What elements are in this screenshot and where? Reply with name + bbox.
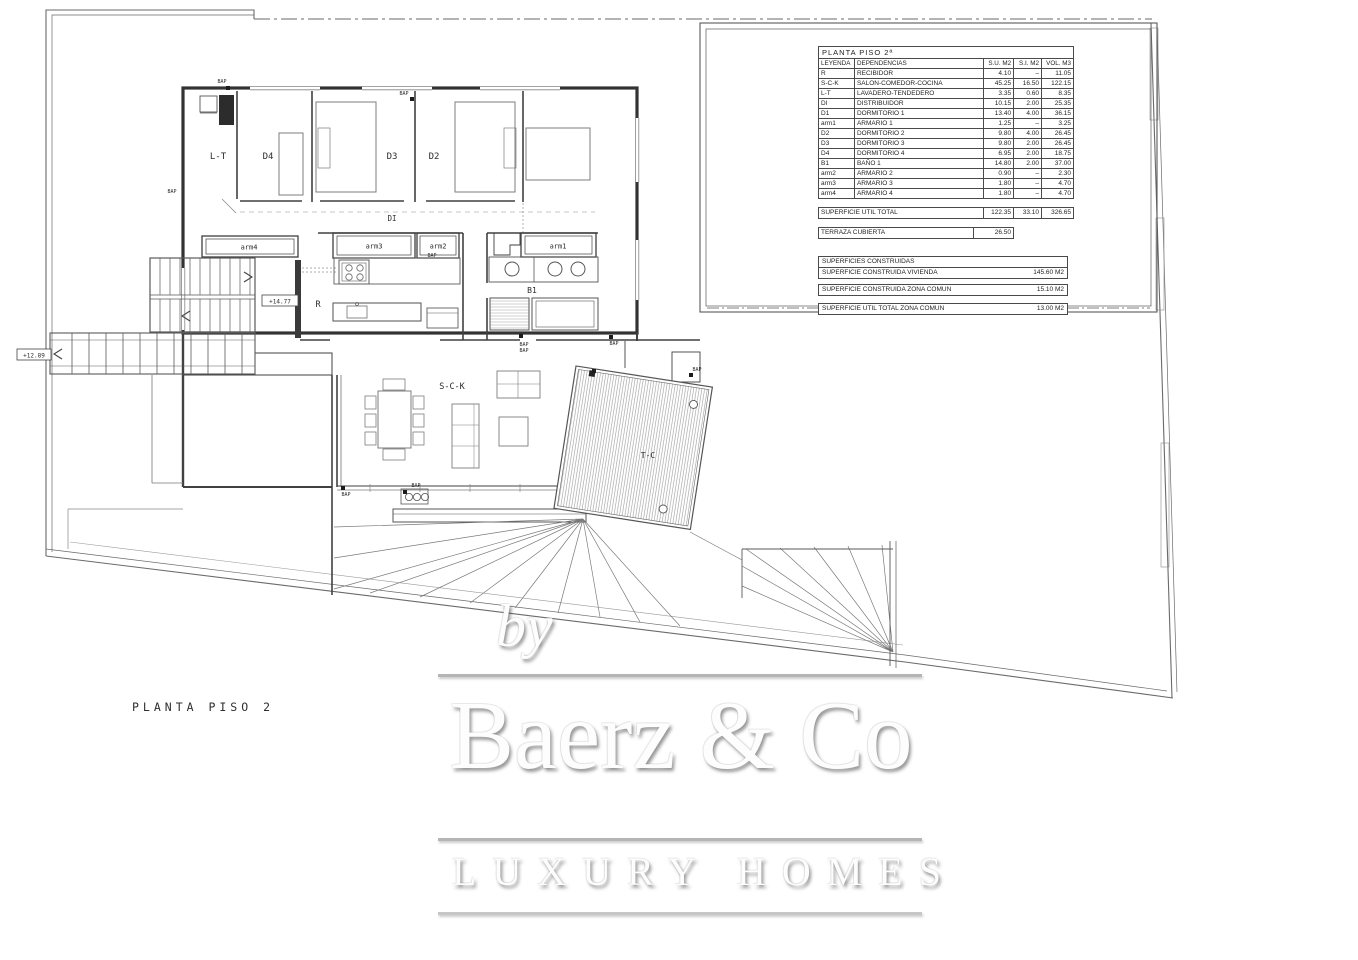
legend-code: arm3 [819, 179, 855, 189]
legend-room-name: ARMARIO 4 [854, 189, 983, 199]
util-zona-label: SUPERFICIE UTIL TOTAL ZONA COMUN [822, 305, 944, 313]
legend-si: 4.00 [1014, 109, 1042, 119]
legend-room-name: BAÑO 1 [854, 159, 983, 169]
vent-label: BAP [427, 253, 436, 259]
legend-row: D2 DORMITORIO 2 9.80 4.00 26.45 [819, 129, 1074, 139]
legend-code: S-C-K [819, 79, 855, 89]
legend-si: – [1014, 169, 1042, 179]
legend-room-name: DORMITORIO 1 [854, 109, 983, 119]
room-label-tc: T-C [641, 451, 656, 460]
legend-su: 3.35 [984, 89, 1014, 99]
legend-vol: 8.35 [1042, 89, 1074, 99]
room-label-arm4: arm4 [241, 244, 258, 252]
legend-room-name: DORMITORIO 4 [854, 149, 983, 159]
legend-room-name: ARMARIO 1 [854, 119, 983, 129]
terraza-label: TERRAZA CUBIERTA [819, 228, 973, 238]
legend-room-name: DORMITORIO 2 [854, 129, 983, 139]
legend-room-name: DISTRIBUIDOR [854, 99, 983, 109]
legend-header: S.U. M2 [984, 59, 1014, 69]
zona-comun-label: SUPERFICIE CONSTRUIDA ZONA COMUN [822, 286, 951, 294]
total-util-box: SUPERFICIE UTIL TOTAL 122.35 33.10 326.6… [818, 207, 1074, 219]
room-label-d3: D3 [387, 152, 398, 162]
legend-header: VOL. M3 [1042, 59, 1074, 69]
legend-si: 4.00 [1014, 129, 1042, 139]
legend-vol: 25.35 [1042, 99, 1074, 109]
built-vivienda-value: 145.60 M2 [1033, 269, 1064, 277]
legend-su: 13.40 [984, 109, 1014, 119]
legend-header-row: LEYENDA DEPENDENCIAS S.U. M2 S.I. M2 VOL… [819, 59, 1074, 69]
room-label-arm3: arm3 [366, 243, 383, 251]
terrace-connector [690, 532, 742, 560]
legend-si: 16.50 [1014, 79, 1042, 89]
vent-label: BAP [411, 483, 420, 489]
legend-panel: PLANTA PISO 2ª LEYENDA DEPENDENCIAS S.U.… [818, 46, 1074, 315]
vent-label: BAP [399, 91, 408, 97]
room-label-r: R [315, 300, 321, 310]
legend-room-name: RECIBIDOR [854, 69, 983, 79]
legend-row: D4 DORMITORIO 4 6.95 2.00 18.75 [819, 149, 1074, 159]
legend-row: arm4 ARMARIO 4 1.80 – 4.70 [819, 189, 1074, 199]
legend-code: D3 [819, 139, 855, 149]
total-util-su: 122.35 [983, 208, 1013, 218]
legend-su: 4.10 [984, 69, 1014, 79]
legend-row: B1 BAÑO 1 14.80 2.00 37.00 [819, 159, 1074, 169]
legend-vol: 2.30 [1042, 169, 1074, 179]
legend-si: 0.60 [1014, 89, 1042, 99]
legend-si: – [1014, 119, 1042, 129]
vent-label: BAP [217, 79, 226, 85]
room-label-sck: S-C-K [439, 382, 465, 392]
util-zona-value: 13.00 M2 [1037, 305, 1064, 313]
legend-row: arm2 ARMARIO 2 0.90 – 2.30 [819, 169, 1074, 179]
legend-code: D4 [819, 149, 855, 159]
building-shell [180, 85, 640, 333]
legend-si: – [1014, 179, 1042, 189]
legend-code: L-T [819, 89, 855, 99]
legend-su: 14.80 [984, 159, 1014, 169]
legend-vol: 36.15 [1042, 109, 1074, 119]
legend-header: DEPENDENCIAS [854, 59, 983, 69]
legend-si: – [1014, 189, 1042, 199]
room-label-di: DI [387, 214, 396, 223]
fan-stairs [334, 519, 896, 668]
vent-label: BAP [609, 341, 618, 347]
legend-code: R [819, 69, 855, 79]
legend-si: 2.00 [1014, 159, 1042, 169]
legend-header: S.I. M2 [1014, 59, 1042, 69]
legend-row: S-C-K SALON-COMEDOR-COCINA 45.25 16.50 1… [819, 79, 1074, 89]
legend-su: 9.80 [984, 129, 1014, 139]
terraza-value: 26.50 [973, 228, 1013, 238]
legend-su: 0.90 [984, 169, 1014, 179]
legend-su: 1.80 [984, 179, 1014, 189]
legend-su: 1.25 [984, 119, 1014, 129]
legend-row: L-T LAVADERO-TENDEDERO 3.35 0.60 8.35 [819, 89, 1074, 99]
built-vivienda-label: SUPERFICIE CONSTRUIDA VIVIENDA [822, 269, 938, 277]
legend-row: R RECIBIDOR 4.10 – 11.05 [819, 69, 1074, 79]
legend-code: DI [819, 99, 855, 109]
zona-comun-box: SUPERFICIE CONSTRUIDA ZONA COMUN 15.10 M… [818, 284, 1068, 296]
vent-label: BAP [519, 348, 528, 354]
legend-vol: 4.70 [1042, 189, 1074, 199]
legend-room-name: DORMITORIO 3 [854, 139, 983, 149]
legend-su: 1.80 [984, 189, 1014, 199]
legend-si: 2.00 [1014, 139, 1042, 149]
zona-comun-value: 15.10 M2 [1037, 286, 1064, 294]
legend-title: PLANTA PISO 2ª [819, 47, 1074, 59]
room-label-arm2: arm2 [430, 243, 447, 251]
room-label-b1: B1 [527, 286, 537, 295]
legend-row: arm1 ARMARIO 1 1.25 – 3.25 [819, 119, 1074, 129]
legend-code: D1 [819, 109, 855, 119]
terraza-box: TERRAZA CUBIERTA 26.50 [818, 227, 1014, 239]
legend-code: arm4 [819, 189, 855, 199]
vent-label: BAP [692, 367, 701, 373]
legend-row: D3 DORMITORIO 3 9.80 2.00 26.45 [819, 139, 1074, 149]
vent-label: BAP [341, 492, 350, 498]
legend-su: 9.80 [984, 139, 1014, 149]
legend-header: LEYENDA [819, 59, 855, 69]
room-label-d2: D2 [429, 152, 440, 162]
room-label-d4: D4 [263, 152, 274, 162]
legend-vol: 26.45 [1042, 129, 1074, 139]
legend-si: 2.00 [1014, 149, 1042, 159]
built-header: SUPERFICIES CONSTRUIDAS [819, 257, 1067, 267]
drawing-title: PLANTA PISO 2 [132, 700, 274, 714]
legend-vol: 3.25 [1042, 119, 1074, 129]
legend-room-name: LAVADERO-TENDEDERO [854, 89, 983, 99]
legend-si: 2.00 [1014, 99, 1042, 109]
terrace-deck [554, 366, 712, 529]
legend-room-name: ARMARIO 2 [854, 169, 983, 179]
room-label-lt: L-T [210, 152, 227, 162]
legend-su: 10.15 [984, 99, 1014, 109]
legend-vol: 122.15 [1042, 79, 1074, 89]
legend-vol: 37.00 [1042, 159, 1074, 169]
level-lower-label: +12.89 [23, 353, 45, 360]
legend-table: PLANTA PISO 2ª LEYENDA DEPENDENCIAS S.U.… [818, 46, 1074, 199]
legend-room-name: SALON-COMEDOR-COCINA [854, 79, 983, 89]
legend-row: D1 DORMITORIO 1 13.40 4.00 36.15 [819, 109, 1074, 119]
legend-su: 6.95 [984, 149, 1014, 159]
legend-room-name: ARMARIO 3 [854, 179, 983, 189]
total-util-vol: 326.65 [1041, 208, 1073, 218]
built-vivienda-row: SUPERFICIE CONSTRUIDA VIVIENDA 145.60 M2 [819, 267, 1067, 278]
vent-label: BAP [167, 189, 176, 195]
legend-vol: 18.75 [1042, 149, 1074, 159]
total-util-si: 33.10 [1013, 208, 1041, 218]
legend-code: B1 [819, 159, 855, 169]
util-zona-box: SUPERFICIE UTIL TOTAL ZONA COMUN 13.00 M… [818, 303, 1068, 315]
level-upper-label: +14.77 [269, 299, 291, 306]
legend-vol: 4.70 [1042, 179, 1074, 189]
room-label-arm1: arm1 [550, 243, 567, 251]
legend-code: arm2 [819, 169, 855, 179]
floor-plan-svg: +14.77 +12.89 L-T D4 D3 D2 DI arm4 arm3 … [0, 0, 1358, 960]
legend-row: arm3 ARMARIO 3 1.80 – 4.70 [819, 179, 1074, 189]
legend-vol: 11.05 [1042, 69, 1074, 79]
total-util-label: SUPERFICIE UTIL TOTAL [819, 208, 983, 218]
legend-vol: 26.45 [1042, 139, 1074, 149]
legend-code: arm1 [819, 119, 855, 129]
built-areas-box: SUPERFICIES CONSTRUIDAS SUPERFICIE CONST… [818, 256, 1068, 279]
floor-plan-page: +14.77 +12.89 L-T D4 D3 D2 DI arm4 arm3 … [0, 0, 1358, 960]
legend-si: – [1014, 69, 1042, 79]
legend-code: D2 [819, 129, 855, 139]
legend-row: DI DISTRIBUIDOR 10.15 2.00 25.35 [819, 99, 1074, 109]
legend-su: 45.25 [984, 79, 1014, 89]
